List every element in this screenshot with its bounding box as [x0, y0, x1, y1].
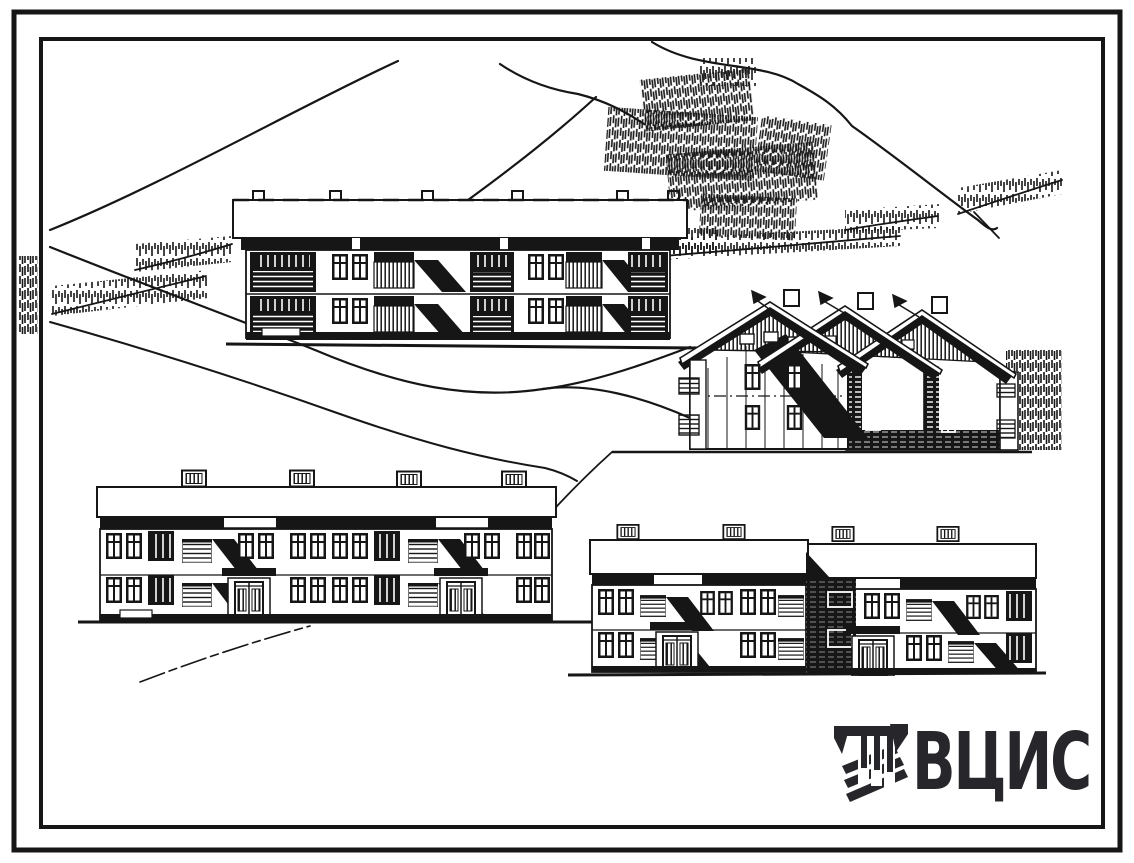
elevation-flat-roof-building [226, 191, 700, 348]
elevation-lower-right-building [568, 525, 1046, 676]
ground-line [568, 673, 1046, 675]
elevations-drawing: ВЦИС [0, 0, 1134, 863]
logo-text: ВЦИС [912, 716, 1090, 808]
drawing-sheet: ВЦИС [0, 0, 1134, 863]
grass-margin-patch [19, 256, 38, 334]
